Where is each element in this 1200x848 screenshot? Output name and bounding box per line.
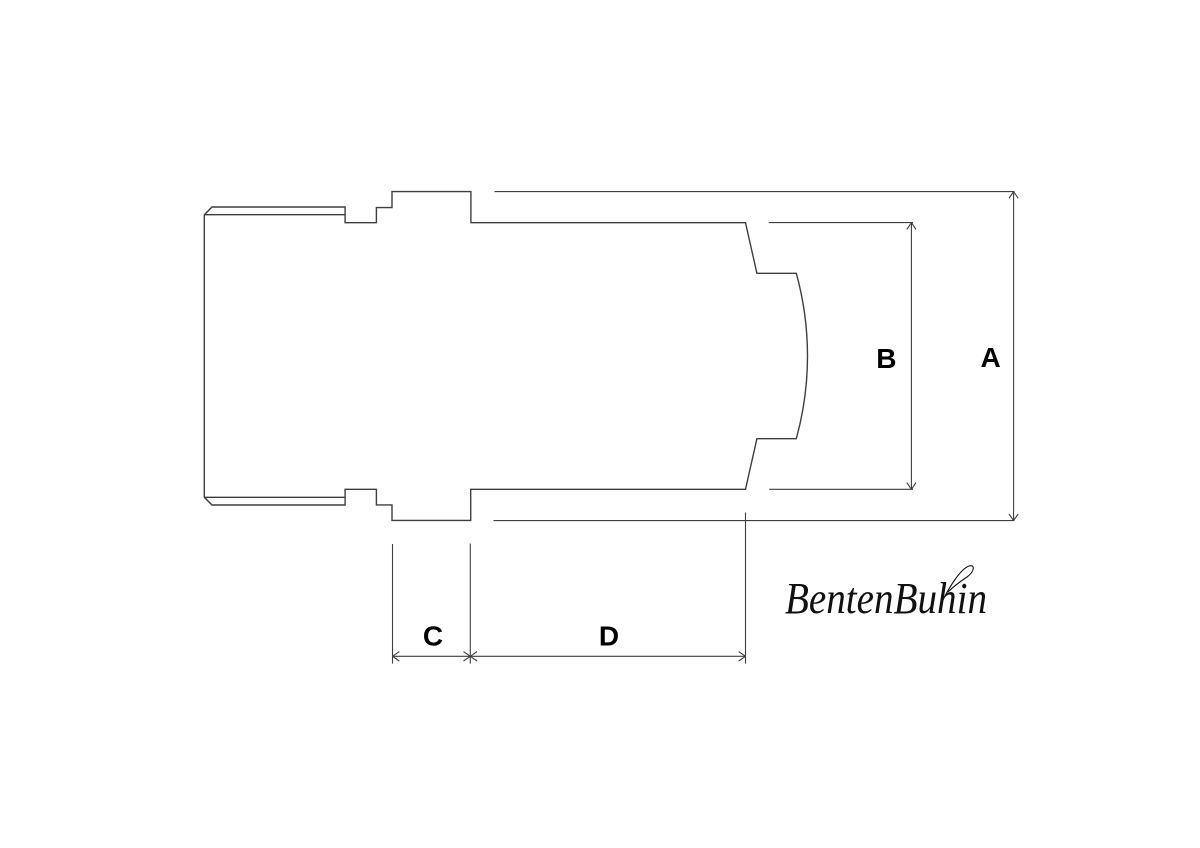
svg-text:C: C [423, 620, 443, 651]
svg-text:A: A [980, 342, 1000, 373]
svg-text:B: B [876, 343, 896, 374]
svg-text:BentenBuhin: BentenBuhin [785, 574, 987, 623]
svg-text:D: D [599, 620, 619, 651]
